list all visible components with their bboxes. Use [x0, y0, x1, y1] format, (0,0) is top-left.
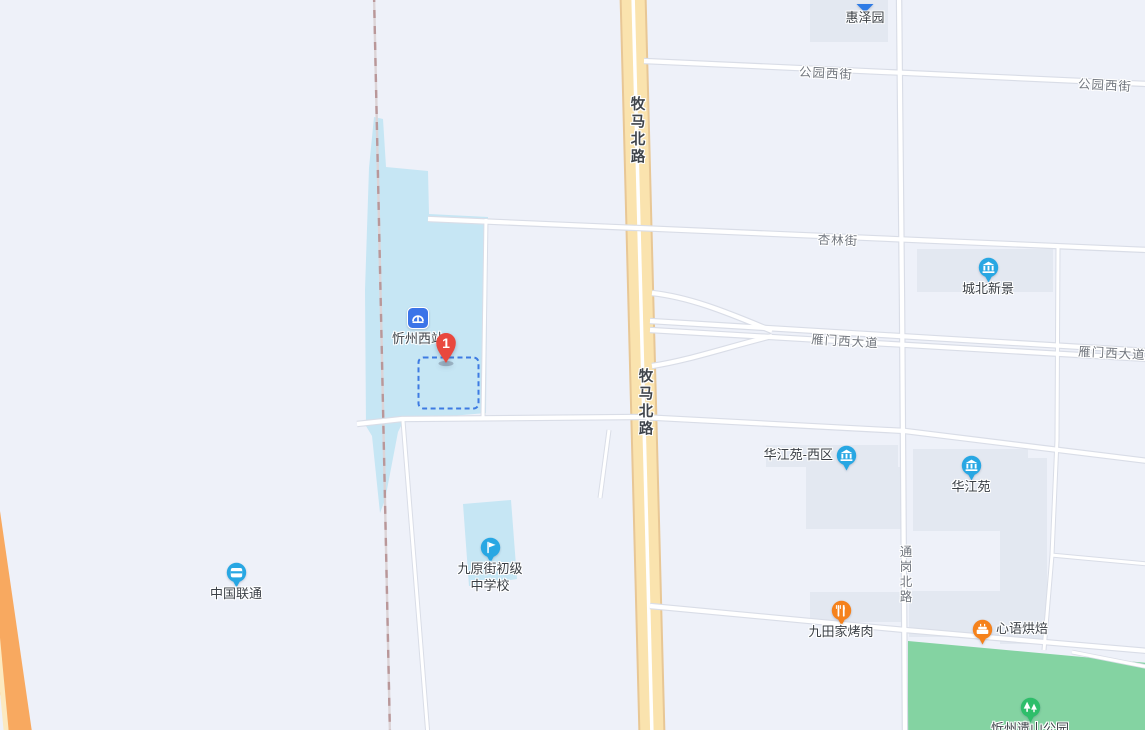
red-marker-icon[interactable]: 1 [431, 330, 461, 372]
poi-label-jiuyuan-street-middle-school[interactable]: 九原街初级中学校 [410, 560, 570, 594]
road-label-muma-north-road-1: 牧马北路 [627, 96, 648, 166]
poi-label-chengbei-xinjing[interactable]: 城北新景 [908, 280, 1068, 297]
road-label-gongyuan-west-street-2: 公园西街 [1078, 73, 1133, 95]
road-label-muma-north-road-2: 牧马北路 [635, 368, 656, 438]
road-label-tonggang-north-road: 通岗北路 [896, 545, 915, 605]
road-label-xinglin-street: 杏林街 [817, 229, 858, 249]
road-gongyuan-west [644, 61, 1145, 84]
poi-label-xinyu-bakery[interactable]: 心语烘焙 [996, 620, 1048, 637]
poi-label-xinzhou-yishan-park[interactable]: 忻州遗山公园 [950, 720, 1110, 730]
poi-label-jiutianjia-bbq[interactable]: 九田家烤肉 [761, 623, 921, 640]
poi-label-china-unicom[interactable]: 中国联通 [156, 585, 316, 602]
road-label-yanmen-west-avenue-1: 雁门西大道 [811, 328, 880, 351]
poi-label-xinzhou-west-station[interactable]: 忻州西站 [338, 330, 498, 347]
poi-label-huizeyuan[interactable]: 惠泽园 [785, 9, 945, 26]
road-short-stub [600, 430, 609, 498]
ramp-south [652, 336, 772, 366]
highway-orange [0, 505, 20, 730]
svg-text:1: 1 [442, 335, 450, 351]
poi-label-huajiangyuan-west[interactable]: 华江苑-西区 [673, 446, 833, 463]
road-label-yanmen-west-avenue-2: 雁门西大道 [1078, 341, 1145, 364]
road-xinglin [428, 219, 1145, 250]
map-canvas[interactable]: 公园西街公园西街杏林街雁门西大道雁门西大道牧马北路牧马北路通岗北路 惠泽园忻州西… [0, 0, 1145, 730]
road-east-stub [1051, 555, 1145, 564]
block-bbq [810, 592, 902, 622]
road-label-gongyuan-west-street-1: 公园西街 [799, 61, 854, 83]
building-icon[interactable] [835, 445, 858, 477]
poi-label-huajiangyuan[interactable]: 华江苑 [891, 478, 1051, 495]
bakery-icon[interactable] [971, 619, 994, 651]
